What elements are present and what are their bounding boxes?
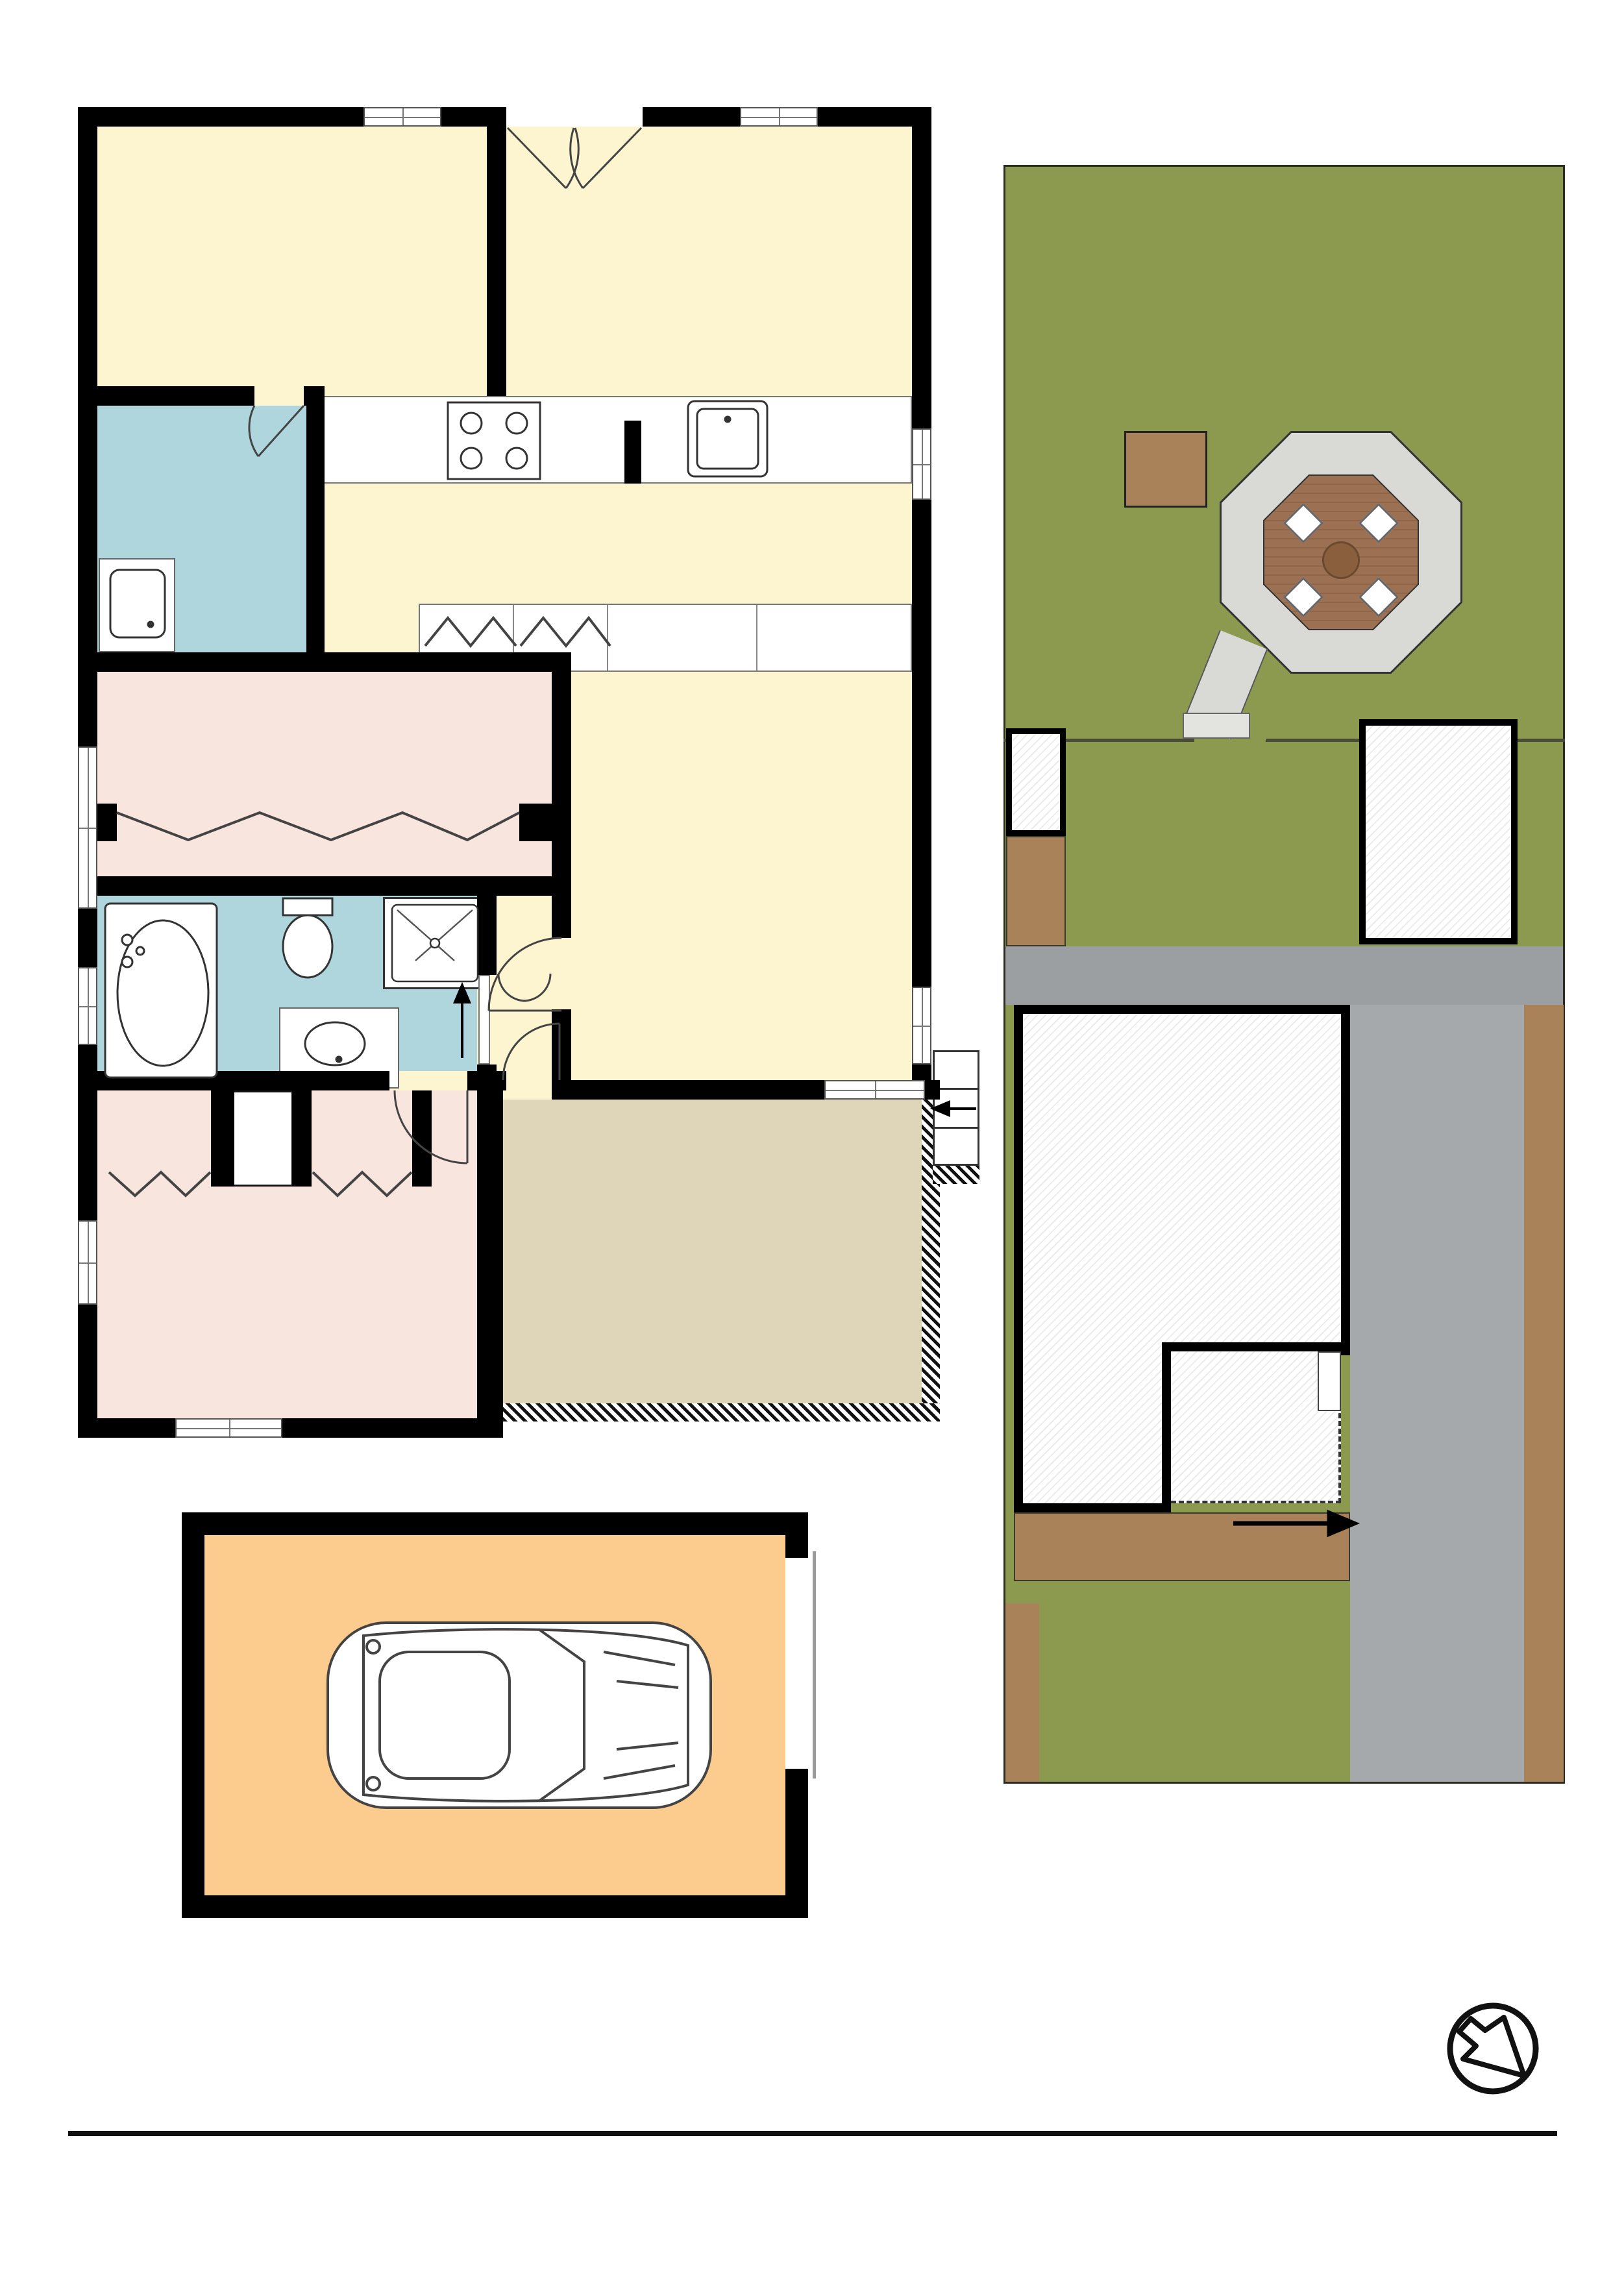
- site-patio: [1171, 1351, 1341, 1503]
- wall-segment: [78, 107, 97, 746]
- garage-door-line: [813, 1551, 816, 1779]
- wall-segment: [785, 1769, 808, 1918]
- pergola-table: [1322, 541, 1360, 579]
- window: [78, 967, 97, 1045]
- cabinet-line-3: [756, 605, 757, 671]
- window: [175, 1418, 282, 1438]
- wall-segment: [78, 107, 363, 127]
- wall-segment: [78, 652, 552, 672]
- wall-segment: [292, 1090, 312, 1187]
- shed: [1006, 728, 1066, 836]
- shower-base: [383, 897, 487, 989]
- wall-segment: [785, 1512, 808, 1558]
- path-landing: [1183, 713, 1250, 739]
- label-study: [162, 208, 422, 245]
- wall-segment: [97, 804, 117, 841]
- wall-segment: [560, 1080, 824, 1100]
- residence-wall: [1162, 1342, 1171, 1512]
- bed1-cupboard: [232, 1090, 293, 1187]
- floorplan-page: [0, 0, 1624, 2277]
- patio-sliding-door: [1318, 1351, 1341, 1411]
- residence-wall: [1014, 1005, 1350, 1014]
- wall-segment: [912, 500, 931, 987]
- wall-segment: [211, 1090, 234, 1187]
- front-garden-bed: [1014, 1512, 1350, 1581]
- bath-sliding-door: [478, 975, 490, 1065]
- wall-segment: [643, 107, 740, 127]
- shed-garden-bed: [1006, 836, 1066, 946]
- wall-segment: [182, 1895, 808, 1918]
- window: [912, 428, 931, 500]
- steps-edge: [933, 1166, 979, 1184]
- wall-segment: [182, 1512, 808, 1535]
- divider-rule: [68, 2131, 1557, 2136]
- step-line-1: [934, 1088, 978, 1090]
- window: [363, 107, 441, 127]
- wall-segment: [78, 876, 552, 896]
- site-garage: [1359, 719, 1518, 944]
- label-kitchen: [351, 516, 610, 553]
- counter-divider: [624, 421, 641, 484]
- patio-edge-bottom: [503, 1403, 940, 1422]
- window: [740, 107, 818, 127]
- wall-segment: [925, 1080, 940, 1100]
- label-dining: [581, 221, 841, 258]
- left-garden-bed: [1005, 1603, 1039, 1782]
- wall-segment: [78, 386, 254, 406]
- label-patio: [591, 1214, 850, 1251]
- laundry-tub-bench: [99, 558, 175, 652]
- concrete-path: [1005, 946, 1563, 1005]
- garden-bed: [1124, 431, 1207, 508]
- label-bed2: [182, 717, 441, 754]
- wall-segment: [78, 909, 97, 967]
- wall-segment: [441, 107, 506, 127]
- window: [912, 987, 931, 1065]
- bed2-room: [97, 672, 552, 876]
- north-arrow-icon: [1442, 1998, 1544, 2099]
- label-garage: [227, 1564, 305, 1863]
- wall-segment: [412, 1090, 432, 1187]
- wall-segment: [477, 896, 497, 975]
- residence-wall: [1341, 1005, 1350, 1355]
- cabinet-line-2: [607, 605, 608, 671]
- label-living: [558, 789, 818, 826]
- wall-segment: [78, 1418, 175, 1438]
- wall-segment: [282, 1418, 503, 1438]
- wall-segment: [519, 804, 552, 841]
- residence-wall: [1014, 1005, 1023, 1512]
- wall-segment: [912, 107, 931, 428]
- label-bed1: [156, 1214, 415, 1251]
- driveway-side-bed: [1524, 1005, 1564, 1782]
- wall-segment: [182, 1512, 204, 1918]
- residence-wall: [1014, 1503, 1171, 1512]
- step-line-2: [934, 1127, 978, 1129]
- wall-segment: [306, 386, 325, 662]
- wall-segment: [78, 1071, 389, 1090]
- patio-steps: [933, 1050, 979, 1166]
- kitchen-counter-top: [318, 396, 912, 484]
- window: [824, 1080, 925, 1100]
- driveway: [1350, 1005, 1524, 1782]
- wall-segment: [477, 1080, 503, 1438]
- residence-wall: [1162, 1342, 1350, 1351]
- window: [78, 746, 97, 909]
- patio-area: [503, 1100, 940, 1403]
- window: [78, 1220, 97, 1305]
- wall-segment: [487, 127, 506, 396]
